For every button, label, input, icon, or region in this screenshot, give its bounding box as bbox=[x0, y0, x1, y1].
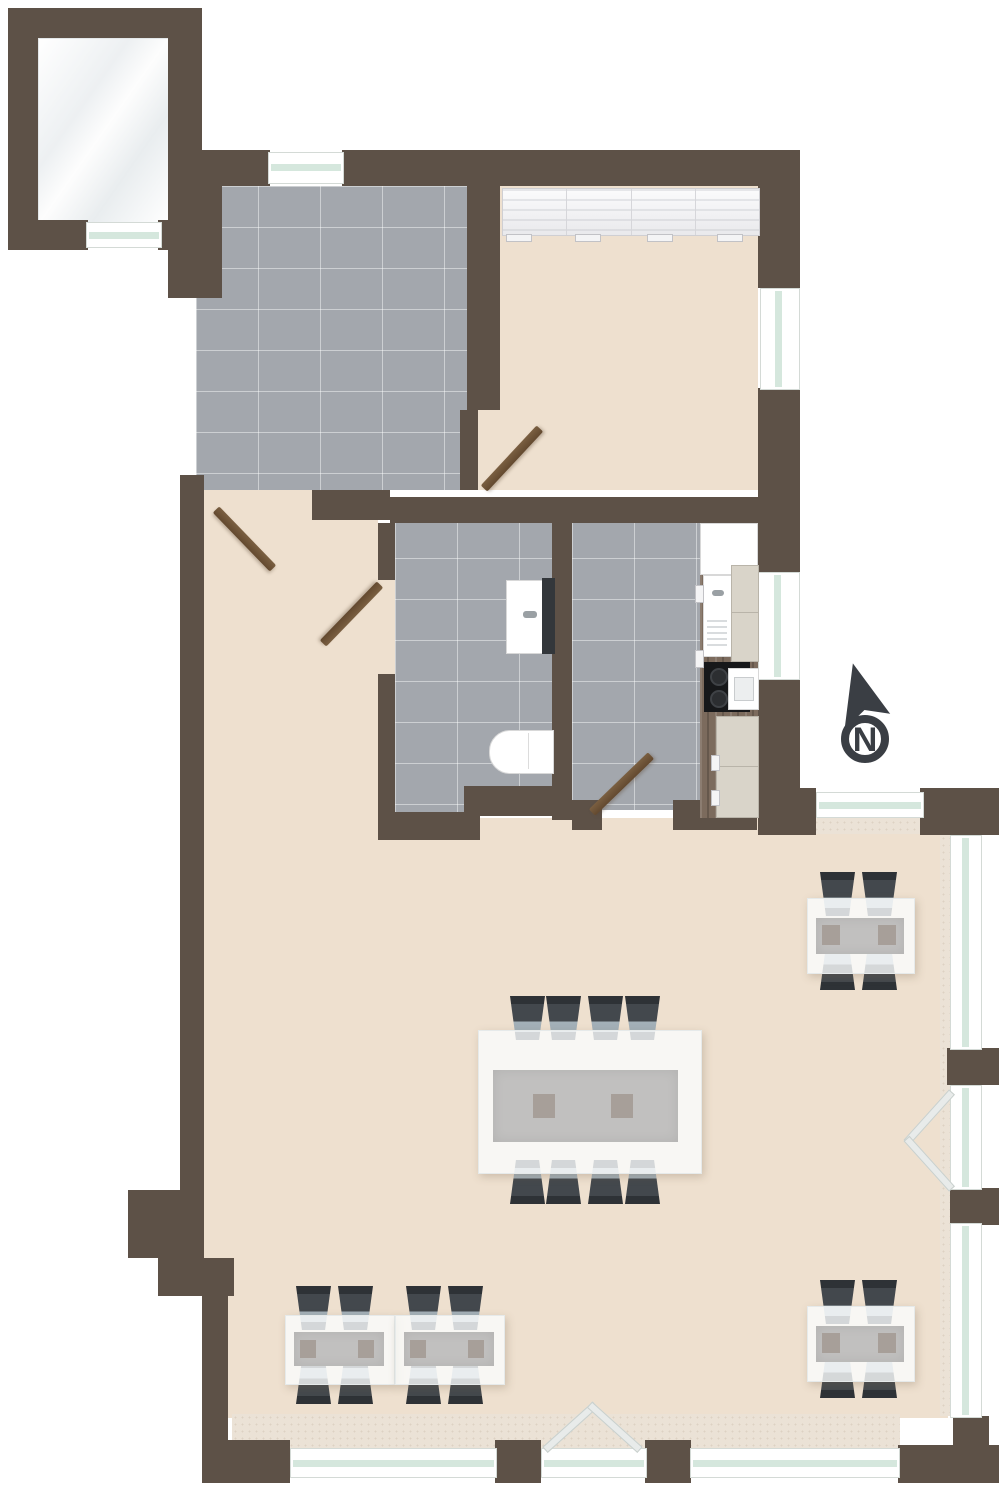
wardrobe-handle bbox=[717, 234, 743, 242]
wall-east-low bbox=[755, 678, 800, 802]
wall-entry-bedroom-divider bbox=[467, 186, 500, 410]
window-south-1 bbox=[290, 1448, 497, 1478]
kitchen-tall-cabinet bbox=[731, 565, 759, 662]
cabinet-divider bbox=[732, 612, 758, 613]
wall-bathroom-west-upper bbox=[378, 523, 395, 580]
wall-corner-southeast-v bbox=[953, 1416, 989, 1448]
wall-top-right bbox=[342, 150, 800, 186]
washbasin bbox=[506, 580, 544, 654]
counter-handle bbox=[711, 790, 720, 806]
faucet-icon bbox=[712, 590, 724, 596]
window-east-1 bbox=[950, 835, 982, 1050]
wall-west-step bbox=[158, 1258, 234, 1296]
french-door-south-frame bbox=[541, 1448, 647, 1478]
placemat bbox=[300, 1340, 316, 1358]
placemat bbox=[468, 1340, 484, 1358]
wardrobe-panel bbox=[696, 189, 759, 235]
wall-corner-southwest bbox=[202, 1440, 290, 1483]
counter-handle bbox=[711, 755, 720, 771]
french-door-east-frame bbox=[950, 1085, 982, 1190]
placemat bbox=[358, 1340, 374, 1358]
window-south-2 bbox=[690, 1448, 900, 1478]
faucet-icon bbox=[523, 611, 537, 618]
wall-entry-bedroom-stub bbox=[460, 410, 478, 490]
wardrobe bbox=[502, 188, 760, 236]
wall-south-pier-1 bbox=[495, 1440, 541, 1483]
cabinet-divider bbox=[717, 766, 758, 767]
wardrobe-handle bbox=[506, 234, 532, 242]
placemat bbox=[533, 1094, 555, 1118]
wall-west-pier bbox=[196, 186, 222, 298]
placemat bbox=[822, 1333, 840, 1353]
wall-east-pier-2 bbox=[950, 1188, 999, 1225]
wall-east-pier-1 bbox=[947, 1048, 999, 1085]
wall-bathroom-south-a bbox=[378, 812, 480, 840]
wall-balcony-bottom-left bbox=[8, 220, 88, 250]
wall-northeast-pier-left bbox=[758, 788, 816, 835]
north-arrow-icon: N bbox=[818, 658, 910, 770]
window-northeast bbox=[816, 792, 924, 818]
wall-bathroom-south-b bbox=[464, 786, 572, 816]
toilet-seat-line bbox=[528, 733, 529, 769]
kitchen-base-cabinets bbox=[716, 716, 759, 818]
window-kitchen-east bbox=[758, 572, 800, 680]
counter-handle bbox=[695, 650, 704, 668]
balcony-floor bbox=[38, 38, 170, 224]
placemat bbox=[410, 1340, 426, 1358]
wall-east-mid bbox=[758, 388, 800, 572]
placemat bbox=[611, 1094, 633, 1118]
wall-west bbox=[180, 475, 204, 1261]
placemat bbox=[822, 925, 840, 945]
wardrobe-panel bbox=[632, 189, 696, 235]
wall-entry-south-a bbox=[312, 490, 390, 520]
wall-west-bump bbox=[128, 1190, 180, 1258]
floor-plan: N bbox=[0, 0, 999, 1498]
kitchen-sink bbox=[703, 575, 733, 657]
wall-bath-kitchen-divider bbox=[552, 523, 572, 820]
north-label: N bbox=[853, 721, 878, 759]
oven bbox=[728, 668, 759, 710]
wardrobe-handle bbox=[575, 234, 601, 242]
wall-corner-southeast-h bbox=[898, 1445, 999, 1483]
wall-south-pier-2 bbox=[645, 1440, 691, 1483]
wall-east-top bbox=[758, 186, 800, 288]
toilet bbox=[489, 730, 554, 774]
wall-top-left bbox=[196, 150, 270, 186]
corridor-floor bbox=[203, 490, 378, 820]
wall-west-lower bbox=[202, 1296, 228, 1444]
window-entry-north bbox=[268, 152, 344, 184]
wall-bath-kitchen-north bbox=[390, 497, 758, 523]
wardrobe-panel bbox=[503, 189, 567, 235]
bathroom-door-slot-floor bbox=[378, 578, 395, 676]
wardrobe-panel bbox=[567, 189, 631, 235]
wall-northeast-pier-right bbox=[920, 788, 999, 835]
burner bbox=[710, 668, 728, 686]
window-east-2 bbox=[950, 1223, 982, 1418]
counter-handle bbox=[695, 585, 704, 603]
wardrobe-handle bbox=[647, 234, 673, 242]
placemat bbox=[878, 1333, 896, 1353]
wall-balcony-left bbox=[8, 8, 38, 250]
wall-bathroom-west-lower bbox=[378, 674, 395, 816]
washbasin-cabinet bbox=[542, 578, 555, 654]
drainboard-lines bbox=[707, 620, 727, 650]
entry-hall-floor bbox=[196, 186, 467, 490]
placemat bbox=[878, 925, 896, 945]
oven-inner bbox=[734, 677, 754, 701]
window-bedroom-east bbox=[760, 288, 800, 390]
window-balcony-south bbox=[86, 222, 162, 248]
table-runner bbox=[493, 1070, 678, 1142]
burner bbox=[710, 690, 728, 708]
